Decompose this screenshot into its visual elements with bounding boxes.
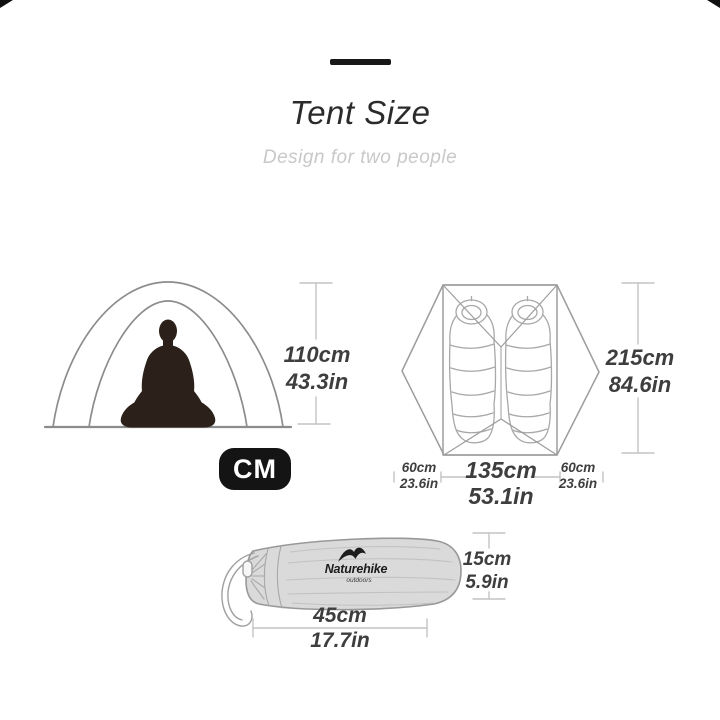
vestibule-left-inch: 23.6in (400, 476, 438, 492)
bag-height-label: 15cm 5.9in (463, 548, 512, 594)
vestibule-right-inch: 23.6in (559, 476, 597, 492)
bag-height-inch: 5.9in (463, 571, 512, 594)
bag-length-label: 45cm 17.7in (310, 603, 370, 653)
bag-length-cm: 45cm (310, 603, 370, 628)
vestibule-right-label: 60cm 23.6in (559, 460, 597, 492)
brand-subtext: outdoors (346, 577, 371, 584)
brand-name: Naturehike (325, 562, 388, 576)
tent-length-label: 215cm 84.6in (606, 344, 675, 398)
unit-badge: CM (219, 448, 291, 490)
unit-badge-label: CM (233, 454, 277, 485)
tent-length-cm: 215cm (606, 344, 675, 371)
vestibule-left-cm: 60cm (400, 460, 438, 476)
vestibule-right-cm: 60cm (559, 460, 597, 476)
tent-height-cm: 110cm (284, 341, 351, 368)
vestibule-left-label: 60cm 23.6in (400, 460, 438, 492)
cord-lock-toggle (243, 561, 252, 577)
bag-height-cm: 15cm (463, 548, 512, 571)
tent-height-label: 110cm 43.3in (284, 341, 351, 395)
seated-person-silhouette-icon (121, 320, 216, 428)
tent-size-infographic: Tent Size Design for two people (0, 0, 720, 720)
tent-length-inch: 84.6in (606, 371, 675, 398)
inner-width-label: 135cm 53.1in (465, 457, 537, 509)
inner-width-inch: 53.1in (465, 483, 537, 509)
inner-width-cm: 135cm (465, 457, 537, 483)
bag-length-inch: 17.7in (310, 628, 370, 653)
tent-height-inch: 43.3in (284, 368, 351, 395)
